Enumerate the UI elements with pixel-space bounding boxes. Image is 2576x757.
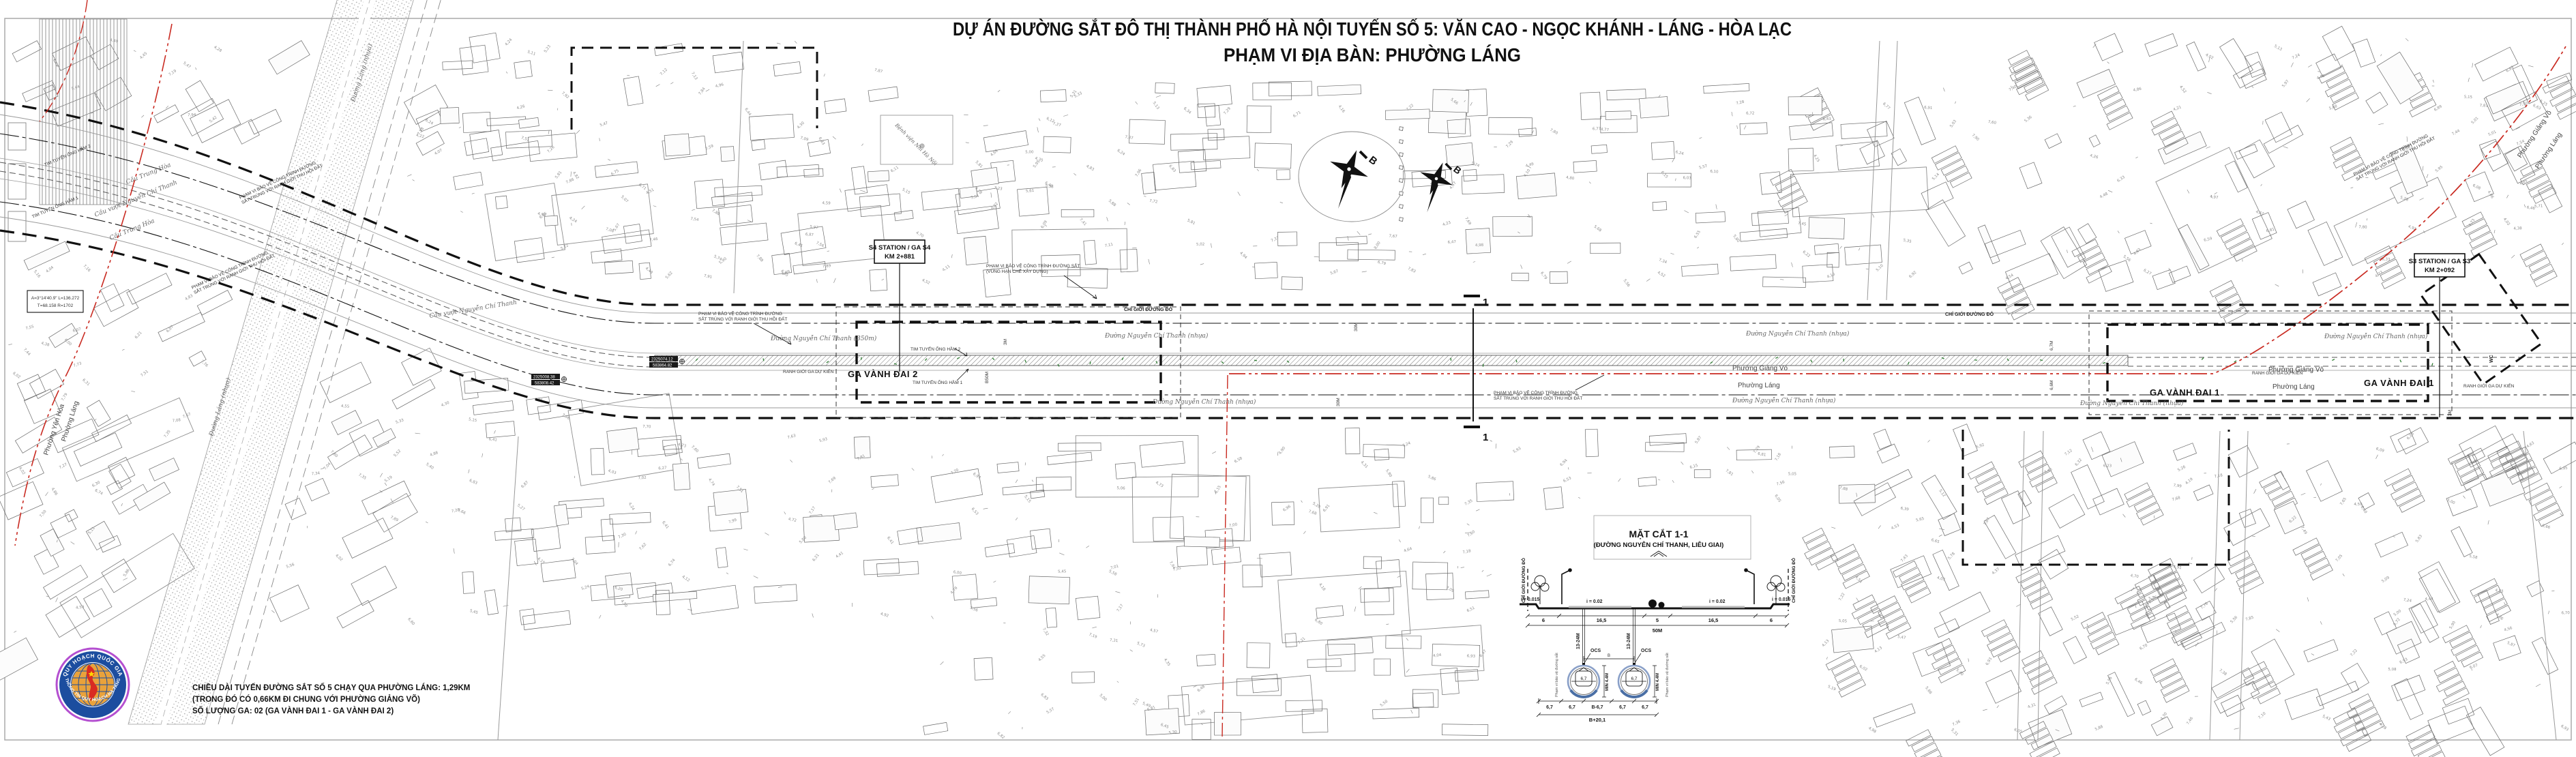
svg-text:5,06: 5,06 (1116, 486, 1125, 491)
svg-text:7,11: 7,11 (1104, 243, 1113, 248)
svg-text:7,35: 7,35 (164, 429, 172, 439)
svg-text:6,02: 6,02 (12, 372, 20, 380)
svg-text:A=3°14'40.9" L=136.272: A=3°14'40.9" L=136.272 (31, 295, 80, 301)
svg-text:5,65: 5,65 (1916, 517, 1925, 523)
svg-text:7,04: 7,04 (323, 462, 332, 471)
svg-text:5,00: 5,00 (2393, 609, 2403, 617)
svg-text:7,79: 7,79 (61, 392, 69, 402)
svg-text:4,92: 4,92 (2408, 224, 2417, 231)
svg-text:7,24: 7,24 (2292, 53, 2301, 61)
svg-text:4,54: 4,54 (1854, 575, 1863, 584)
svg-text:5,19: 5,19 (384, 475, 394, 484)
svg-text:7,49: 7,49 (2300, 526, 2308, 535)
street-nct-s3: Đường Nguyễn Chí Thanh (nhựa) (2079, 400, 2184, 407)
svg-text:5,08: 5,08 (2388, 668, 2397, 672)
svg-text:7,86: 7,86 (1197, 709, 1206, 717)
svg-text:4,98: 4,98 (1867, 726, 1877, 734)
svg-text:7,56: 7,56 (1776, 480, 1786, 487)
svg-text:6,44: 6,44 (743, 108, 752, 117)
svg-text:7,70: 7,70 (642, 425, 651, 429)
svg-text:6,27: 6,27 (2143, 269, 2152, 277)
ward-label-lang-3: Phường Láng (2534, 131, 2564, 170)
svg-text:5,03: 5,03 (1949, 119, 1957, 129)
svg-text:5,15: 5,15 (2464, 95, 2473, 100)
svg-text:7,60: 7,60 (1467, 530, 1477, 538)
svg-text:7,28: 7,28 (451, 508, 461, 514)
svg-text:4,19: 4,19 (2185, 477, 2194, 486)
svg-text:50M: 50M (1653, 627, 1663, 634)
svg-text:5,97: 5,97 (2281, 79, 2290, 89)
svg-text:7,88: 7,88 (755, 254, 764, 263)
svg-text:6,74: 6,74 (94, 488, 104, 496)
svg-text:6,23: 6,23 (2103, 464, 2112, 469)
svg-text:4,51: 4,51 (645, 188, 655, 196)
svg-text:4,92: 4,92 (880, 612, 889, 618)
svg-text:5,19: 5,19 (1827, 685, 1837, 692)
svg-text:4,13: 4,13 (1874, 646, 1883, 654)
svg-text:5,93: 5,93 (1513, 447, 1522, 454)
svg-text:5,50: 5,50 (1380, 699, 1389, 708)
svg-text:6,09: 6,09 (1041, 220, 1049, 229)
svg-text:5,45: 5,45 (1058, 569, 1067, 574)
svg-text:6,7: 6,7 (1546, 705, 1553, 710)
svg-text:7,51: 7,51 (140, 370, 149, 378)
svg-text:7,36: 7,36 (1952, 719, 1961, 727)
svg-text:4,11: 4,11 (942, 265, 951, 273)
svg-text:4,04: 4,04 (1433, 653, 1442, 659)
svg-text:6,31: 6,31 (81, 378, 90, 387)
protect-label-2: PHẠM VI BẢO VỆ CÔNG TRÌNH ĐƯỜNG SẮT TRÙN… (1494, 375, 1604, 401)
svg-text:B+20,1: B+20,1 (1589, 717, 1605, 723)
svg-text:7,27: 7,27 (1052, 121, 1062, 128)
svg-text:4,57: 4,57 (1149, 628, 1159, 634)
svg-text:6,60: 6,60 (406, 617, 415, 626)
svg-text:7,19: 7,19 (1089, 633, 1098, 640)
svg-text:4,53: 4,53 (1891, 523, 1900, 531)
svg-text:7,90: 7,90 (1971, 133, 1981, 142)
site-plan-canvas: 4,885,954,857,355,025,664,317,544,167,19… (0, 0, 2576, 757)
tunnel-ring-left: 6,7 (1568, 666, 1599, 697)
svg-text:6,41: 6,41 (886, 536, 894, 545)
svg-text:7,87: 7,87 (1125, 135, 1134, 140)
svg-text:4,02: 4,02 (334, 554, 343, 563)
svg-text:7,60: 7,60 (690, 445, 699, 454)
svg-text:6,24: 6,24 (1675, 150, 1685, 156)
svg-text:4,03: 4,03 (608, 469, 617, 476)
station-label-vanh-dai-1b: GA VÀNH ĐAI 1 (2364, 378, 2434, 388)
svg-text:5,92: 5,92 (1976, 443, 1985, 449)
svg-text:6,34: 6,34 (1183, 106, 1192, 115)
svg-text:7,22: 7,22 (2350, 649, 2358, 657)
svg-text:5,67: 5,67 (1330, 269, 1339, 276)
svg-text:4,55: 4,55 (341, 404, 350, 409)
svg-text:5,67: 5,67 (612, 222, 621, 232)
svg-text:7,13: 7,13 (690, 72, 698, 81)
protection-boundary-north (0, 102, 2576, 305)
svg-text:4,88: 4,88 (430, 451, 439, 458)
svg-text:5,81: 5,81 (1187, 218, 1196, 226)
section-cut-line: 1 1 (1464, 295, 1488, 443)
svg-text:4,12: 4,12 (681, 575, 691, 583)
svg-text:7,09: 7,09 (799, 136, 809, 143)
ga-boundary-1: RANH GIỚI GA DỰ KIẾN (783, 368, 834, 374)
svg-text:5,10: 5,10 (1876, 263, 1884, 272)
svg-text:5,05: 5,05 (1788, 472, 1797, 476)
svg-text:7,41: 7,41 (1078, 218, 1087, 226)
svg-text:6,79: 6,79 (1539, 271, 1548, 281)
svg-text:4,56: 4,56 (2504, 626, 2513, 632)
min-clear-left: MIN 4.4M (1605, 673, 1610, 691)
svg-text:5,27: 5,27 (516, 503, 526, 511)
svg-text:6,24: 6,24 (424, 119, 434, 126)
svg-text:7,10: 7,10 (2257, 711, 2267, 720)
svg-text:7,31: 7,31 (1110, 638, 1119, 643)
cut-number-top: 1 (1483, 297, 1488, 308)
svg-text:5,61: 5,61 (1026, 189, 1035, 194)
svg-text:7,67: 7,67 (1389, 234, 1397, 239)
svg-text:7,69: 7,69 (1464, 216, 1472, 226)
svg-text:6,72: 6,72 (1746, 112, 1754, 116)
svg-text:6,21: 6,21 (134, 331, 143, 340)
svg-text:7,34: 7,34 (1658, 258, 1668, 265)
svg-text:6: 6 (1770, 617, 1773, 623)
svg-text:7,44: 7,44 (2451, 129, 2461, 136)
svg-text:7,18: 7,18 (1462, 549, 1472, 555)
svg-text:5,35: 5,35 (1903, 238, 1912, 244)
svg-text:5,05: 5,05 (1839, 619, 1848, 624)
svg-text:7,29: 7,29 (1223, 106, 1232, 116)
svg-text:6,83: 6,83 (818, 136, 826, 146)
svg-text:8,00: 8,00 (1374, 241, 1382, 250)
svg-text:7,00: 7,00 (1229, 522, 1239, 528)
svg-text:7,56: 7,56 (815, 241, 825, 248)
svg-text:6,00: 6,00 (63, 338, 72, 347)
svg-text:6,74: 6,74 (668, 558, 677, 567)
svg-text:5,15: 5,15 (1023, 494, 1031, 504)
note-line1: CHIỀU DÀI TUYẾN ĐƯỜNG SẮT SỐ 5 CHẠY QUA … (192, 683, 470, 692)
svg-text:5,58: 5,58 (2469, 554, 2478, 561)
svg-text:6,51: 6,51 (1466, 606, 1476, 614)
svg-text:5,86: 5,86 (1427, 475, 1436, 482)
dim-b50m: B50M (985, 372, 990, 383)
svg-text:4,35: 4,35 (1163, 657, 1171, 667)
svg-text:6,02: 6,02 (1859, 665, 1868, 672)
callout-s3-line2: KM 2+092 (2425, 267, 2455, 274)
svg-text:6,83: 6,83 (469, 479, 478, 486)
svg-text:4,86: 4,86 (2133, 87, 2142, 93)
svg-text:4,18: 4,18 (1318, 582, 1326, 592)
svg-text:5,68: 5,68 (1593, 224, 1603, 233)
hospital-parcel: Bệnh viện Nhi Hà Nội (880, 115, 953, 167)
svg-text:6,33: 6,33 (2116, 175, 2126, 183)
svg-text:7,84: 7,84 (698, 87, 707, 96)
svg-text:4,41: 4,41 (835, 551, 844, 559)
svg-text:TIM TUYẾN ỐNG HẦM 1: TIM TUYẾN ỐNG HẦM 1 (913, 378, 963, 385)
svg-text:6,7: 6,7 (1642, 705, 1648, 710)
title-block: DỰ ÁN ĐƯỜNG SẮT ĐÔ THỊ THÀNH PHỐ HÀ NỘI … (953, 18, 1792, 65)
svg-text:5,88: 5,88 (2094, 725, 2104, 732)
svg-text:6,91: 6,91 (1322, 504, 1331, 513)
svg-text:4,47: 4,47 (1449, 181, 1458, 190)
svg-text:7,27: 7,27 (59, 462, 68, 470)
svg-text:7,87: 7,87 (1983, 517, 1992, 526)
svg-text:5,00: 5,00 (1099, 694, 1108, 702)
svg-text:6,15: 6,15 (1215, 485, 1223, 494)
svg-text:4,70: 4,70 (2130, 574, 2140, 579)
svg-text:5,31: 5,31 (1950, 728, 1959, 737)
svg-text:4,72: 4,72 (788, 517, 797, 522)
svg-text:6,22: 6,22 (1802, 250, 1811, 258)
svg-text:7,88: 7,88 (711, 209, 720, 217)
svg-text:5,73: 5,73 (1136, 642, 1146, 649)
dim-66m: 6,6M (2049, 381, 2054, 390)
slope-l2: i = 0.02 (1586, 599, 1603, 604)
svg-text:7,99: 7,99 (728, 518, 738, 525)
svg-text:5,15: 5,15 (902, 188, 911, 195)
svg-text:5,87: 5,87 (2506, 641, 2516, 649)
svg-text:7,38: 7,38 (2218, 668, 2227, 677)
svg-text:7,51: 7,51 (1132, 698, 1140, 707)
north-label-1: B (1367, 154, 1380, 168)
street-nct-n3: Đường Nguyễn Chí Thanh (nhựa) (2324, 333, 2428, 340)
svg-text:7,99: 7,99 (2173, 484, 2182, 489)
svg-text:B: B (1608, 654, 1610, 658)
svg-text:4,59: 4,59 (822, 201, 831, 206)
svg-text:4,16: 4,16 (1826, 272, 1836, 280)
bridge-trung-hoa-1: Cầu Trung Hòa (125, 161, 172, 186)
note-line2: (TRONG ĐÓ CÓ 0,66KM ĐI CHUNG VỚI PHƯỜNG … (192, 695, 420, 704)
svg-text:16,5: 16,5 (1597, 617, 1607, 623)
svg-text:6,93: 6,93 (1985, 657, 1994, 666)
note-line3: SỐ LƯỢNG GA: 02 (GA VÀNH ĐAI 1 - GA VÀNH… (192, 706, 394, 715)
svg-text:5,01: 5,01 (2488, 130, 2498, 137)
section-title: MẶT CẮT 1-1 (1629, 528, 1688, 539)
svg-text:4,04: 4,04 (46, 265, 55, 273)
svg-text:6: 6 (1542, 617, 1545, 623)
svg-text:5,95: 5,95 (2435, 165, 2444, 173)
svg-text:6,82: 6,82 (996, 732, 1005, 740)
svg-text:5,87: 5,87 (1694, 435, 1702, 445)
svg-text:6,87: 6,87 (520, 480, 529, 489)
min-clear-right: MIN 4.4M (1656, 673, 1660, 691)
svg-text:6,7: 6,7 (1631, 677, 1637, 681)
svg-text:B-6,7: B-6,7 (1591, 705, 1603, 710)
svg-text:7,92: 7,92 (561, 91, 569, 100)
svg-text:6,80: 6,80 (1314, 618, 1323, 626)
svg-text:4,03: 4,03 (1936, 576, 1946, 582)
svg-text:7,50: 7,50 (2519, 102, 2529, 107)
svg-text:6,96: 6,96 (1282, 505, 1292, 513)
svg-text:5,00: 5,00 (2446, 499, 2456, 506)
coordinate-marker-2: 2325008.38 583808.42 (531, 374, 567, 386)
lamp-left (1562, 569, 1571, 604)
svg-text:4,46: 4,46 (2043, 467, 2053, 475)
street-nct-s2: Đường Nguyễn Chí Thanh (nhựa) (1732, 397, 1836, 404)
agency-logo: QUY HOẠCH QUỐC GIA THÔNG TIN QUY HOẠCH-H… (57, 649, 129, 721)
svg-text:7,43: 7,43 (1900, 554, 1909, 563)
svg-text:4,63: 4,63 (2526, 441, 2536, 449)
svg-text:6,83: 6,83 (1168, 164, 1176, 174)
svg-text:4,24: 4,24 (627, 502, 636, 511)
depth-right: 13-24M (1627, 633, 1631, 649)
svg-text:6,15: 6,15 (1660, 170, 1669, 179)
svg-text:5,13: 5,13 (2273, 44, 2283, 52)
svg-text:7,12: 7,12 (2064, 449, 2073, 457)
svg-text:5,81: 5,81 (554, 170, 563, 179)
callout-s3-line1: S3 STATION / GA S3 (2409, 258, 2471, 265)
svg-text:4,24: 4,24 (568, 216, 578, 224)
svg-text:5,78: 5,78 (1947, 552, 1956, 561)
boundary-south-branch (1222, 375, 1228, 738)
svg-text:2325008.38: 2325008.38 (533, 376, 555, 380)
ward-boundaries: Phường Giảng Võ Phường Láng Phường Giảng… (15, 0, 2566, 738)
street-nct-s1: Đường Nguyễn Chí Thanh (nhựa) (1152, 398, 1256, 406)
svg-text:6,93: 6,93 (2560, 724, 2569, 732)
svg-text:7,76: 7,76 (2200, 602, 2210, 610)
svg-text:4,28: 4,28 (2378, 722, 2388, 731)
svg-text:6,30: 6,30 (91, 480, 101, 488)
svg-text:6,81: 6,81 (1758, 452, 1766, 458)
svg-text:5,00: 5,00 (1025, 150, 1034, 154)
svg-text:5,56: 5,56 (969, 606, 979, 613)
slope-right: i = 0.015 (1772, 597, 1791, 602)
svg-text:7,54: 7,54 (690, 217, 700, 222)
svg-text:7,60: 7,60 (1987, 120, 1997, 125)
svg-text:7,21: 7,21 (1297, 637, 1306, 645)
svg-text:6,02: 6,02 (991, 202, 999, 211)
svg-text:6,11: 6,11 (890, 166, 900, 174)
svg-text:7,89: 7,89 (823, 264, 831, 269)
svg-text:6,39: 6,39 (1900, 507, 1910, 512)
cross-section-detail: MẶT CẮT 1-1 (ĐƯỜNG NGUYỄN CHÍ THANH, LIỄ… (1520, 516, 1796, 723)
svg-text:4,73: 4,73 (2375, 270, 2384, 278)
svg-text:6,05: 6,05 (1773, 494, 1781, 503)
svg-text:5,83: 5,83 (2415, 534, 2423, 544)
svg-text:7,12: 7,12 (660, 68, 668, 76)
svg-text:4,80: 4,80 (1566, 176, 1575, 181)
svg-text:5,36: 5,36 (2024, 115, 2033, 123)
svg-text:4,38: 4,38 (2513, 226, 2522, 231)
svg-text:6,00: 6,00 (953, 570, 962, 576)
svg-text:4,52: 4,52 (1657, 271, 1666, 278)
svg-text:4,45: 4,45 (139, 51, 148, 60)
svg-text:6,92: 6,92 (1908, 271, 1917, 280)
svg-text:7,24: 7,24 (2403, 598, 2412, 604)
svg-text:7,68: 7,68 (1308, 509, 1318, 516)
dim-30m-1: 30M (1354, 323, 1359, 331)
svg-text:7,35: 7,35 (1464, 499, 1474, 507)
svg-text:4,78: 4,78 (950, 586, 959, 595)
svg-text:7,37: 7,37 (1271, 236, 1280, 243)
svg-text:5,40: 5,40 (425, 462, 434, 471)
svg-text:5,36: 5,36 (1045, 184, 1054, 190)
svg-text:5,30: 5,30 (1168, 730, 1177, 736)
svg-text:5,68: 5,68 (2328, 104, 2338, 111)
svg-text:5,57: 5,57 (1699, 164, 1708, 170)
svg-text:4,91: 4,91 (2173, 565, 2182, 571)
svg-text:4,83: 4,83 (185, 294, 194, 302)
svg-text:7,50: 7,50 (39, 509, 48, 519)
svg-text:6,7: 6,7 (1619, 705, 1626, 710)
svg-text:6,15: 6,15 (1689, 464, 1699, 470)
svg-text:4,70: 4,70 (915, 231, 925, 239)
svg-text:5,62: 5,62 (665, 271, 674, 280)
svg-text:6,32: 6,32 (2075, 458, 2083, 467)
svg-text:7,16: 7,16 (82, 264, 91, 273)
svg-text:4,30: 4,30 (797, 121, 805, 130)
svg-text:7,66: 7,66 (561, 413, 571, 421)
svg-text:4,52: 4,52 (921, 278, 931, 286)
ga-boundary-3: RANH GIỚI GA DỰ KIẾN (2463, 382, 2515, 389)
svg-text:5,11: 5,11 (527, 50, 536, 57)
svg-text:6,53: 6,53 (1563, 476, 1572, 484)
svg-text:5,71: 5,71 (2534, 204, 2543, 209)
svg-text:7,44: 7,44 (23, 348, 31, 357)
svg-text:6,09: 6,09 (2375, 447, 2385, 454)
svg-text:PHẠM VI BẢO VỆ CÔNG TRÌNH ĐƯỜN: PHẠM VI BẢO VỆ CÔNG TRÌNH ĐƯỜNG (1494, 389, 1578, 396)
svg-text:4,83: 4,83 (1085, 164, 1095, 172)
svg-text:5,23: 5,23 (544, 44, 552, 54)
utility-chain (1400, 127, 1404, 222)
svg-text:6,07: 6,07 (166, 325, 175, 333)
svg-text:5,80: 5,80 (1385, 469, 1393, 478)
depth-left: 13-24M (1576, 633, 1581, 649)
svg-text:6,87: 6,87 (805, 233, 814, 237)
slope-r2: i = 0.02 (1709, 599, 1726, 604)
svg-text:4,16: 4,16 (1337, 104, 1346, 114)
svg-text:4,30: 4,30 (441, 401, 450, 408)
page-title-line1: DỰ ÁN ĐƯỜNG SẮT ĐÔ THỊ THÀNH PHỐ HÀ NỘI … (953, 18, 1792, 40)
svg-text:4,86: 4,86 (50, 487, 59, 496)
svg-text:7,65: 7,65 (2339, 496, 2348, 506)
page-title-line2: PHẠM VI ĐỊA BÀN: PHƯỜNG LÁNG (1224, 44, 1521, 65)
svg-text:6,71: 6,71 (1292, 110, 1302, 119)
svg-text:5,97: 5,97 (810, 225, 819, 231)
svg-text:4,86: 4,86 (2495, 612, 2504, 621)
dim-30m-2: 30M (1336, 398, 1341, 406)
svg-text:5,58: 5,58 (1108, 569, 1117, 577)
svg-text:6,07: 6,07 (2469, 664, 2478, 670)
svg-text:4,73: 4,73 (1155, 481, 1164, 489)
svg-text:4,74: 4,74 (707, 477, 715, 487)
station-label-vanh-dai-2: GA VÀNH ĐAI 2 (848, 369, 918, 379)
to-lich-river: Đường Láng (nhựa) Đường Láng (nhựa) (128, 0, 445, 724)
svg-text:5,24: 5,24 (1470, 161, 1480, 168)
svg-text:2325074.12: 2325074.12 (651, 358, 673, 362)
svg-text:6,79: 6,79 (1377, 261, 1387, 267)
svg-text:6,63: 6,63 (2532, 104, 2542, 111)
svg-text:6,03: 6,03 (1683, 176, 1691, 180)
svg-text:7,87: 7,87 (874, 68, 883, 74)
svg-text:4,26: 4,26 (516, 104, 526, 110)
svg-text:4,48: 4,48 (645, 267, 654, 276)
street-nct-n2: Đường Nguyễn Chí Thanh (nhựa) (1745, 330, 1850, 338)
svg-text:6,59: 6,59 (2204, 237, 2213, 243)
svg-text:4,97: 4,97 (2210, 195, 2219, 201)
svg-text:4,55: 4,55 (1038, 653, 1047, 662)
svg-text:4,73: 4,73 (2468, 218, 2476, 228)
svg-text:4,13: 4,13 (1822, 639, 1831, 648)
svg-text:7,91: 7,91 (703, 274, 712, 280)
svg-text:7,19: 7,19 (168, 69, 177, 77)
svg-text:SẮT TRÙNG VỚI RANH GIỚI THU HỒ: SẮT TRÙNG VỚI RANH GIỚI THU HỒI ĐẤT (2354, 134, 2436, 182)
red-line-label-2: CHỈ GIỚI ĐƯỜNG ĐỎ (1945, 311, 1994, 317)
svg-text:7,76: 7,76 (200, 359, 209, 368)
svg-text:4,02: 4,02 (2502, 218, 2511, 226)
svg-text:6,77: 6,77 (1593, 128, 1601, 132)
svg-text:PHẠM VI BẢO VỆ CÔNG TRÌNH ĐƯỜN: PHẠM VI BẢO VỆ CÔNG TRÌNH ĐƯỜNG SẮT (986, 263, 1080, 269)
svg-text:6,48: 6,48 (1197, 685, 1206, 694)
